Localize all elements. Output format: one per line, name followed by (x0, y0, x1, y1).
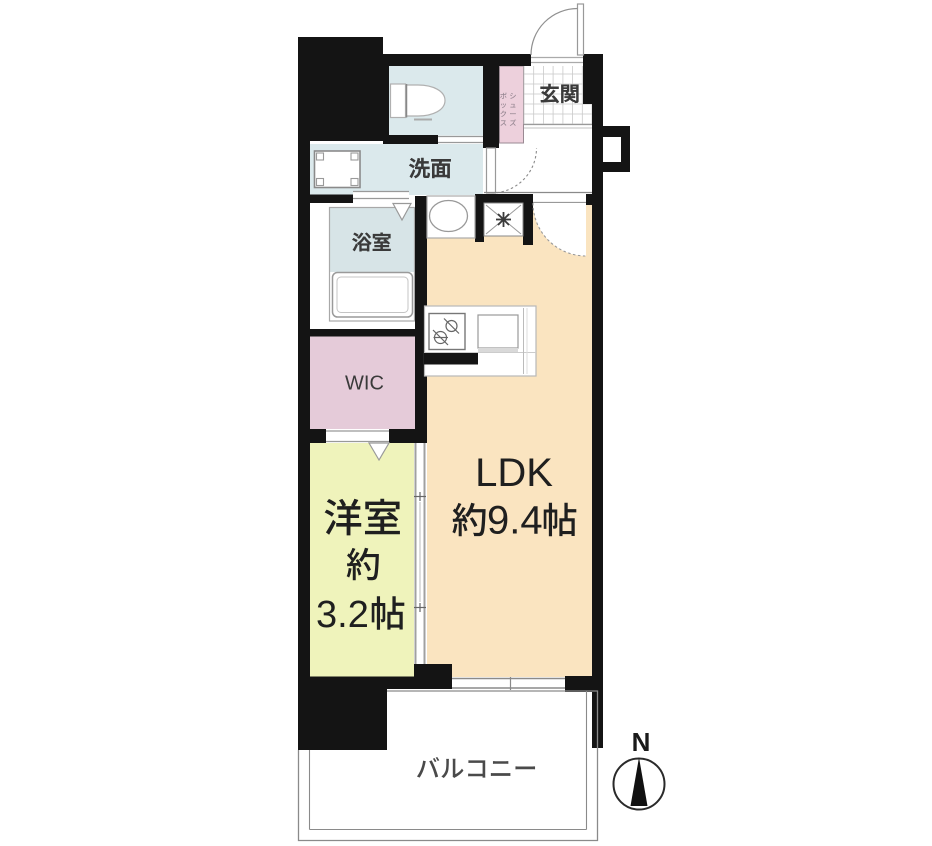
svg-text:3.2: 3.2 (316, 594, 369, 636)
svg-text:WIC: WIC (345, 373, 384, 395)
svg-text:LDK: LDK (475, 451, 553, 495)
svg-text:N: N (632, 727, 651, 757)
svg-text:9.4: 9.4 (487, 499, 543, 543)
